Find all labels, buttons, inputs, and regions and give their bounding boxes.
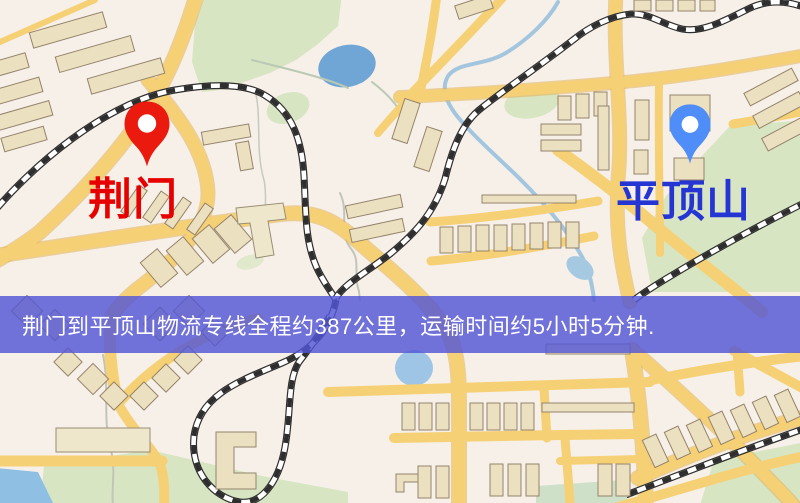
logistics-route-map: 荆门 平顶山 荆门到平顶山物流专线全程约387公里，运输时间约5小时5分钟. [0, 0, 800, 503]
origin-pin-icon [122, 100, 172, 168]
map-canvas [0, 0, 800, 503]
destination-marker [667, 103, 713, 165]
route-info-banner: 荆门到平顶山物流专线全程约387公里，运输时间约5小时5分钟. [0, 296, 800, 353]
origin-marker [122, 100, 172, 168]
route-info-text: 荆门到平顶山物流专线全程约387公里，运输时间约5小时5分钟. [0, 309, 655, 341]
destination-pin-icon [667, 103, 713, 165]
destination-label: 平顶山 [616, 180, 751, 224]
origin-label: 荆门 [88, 178, 178, 222]
